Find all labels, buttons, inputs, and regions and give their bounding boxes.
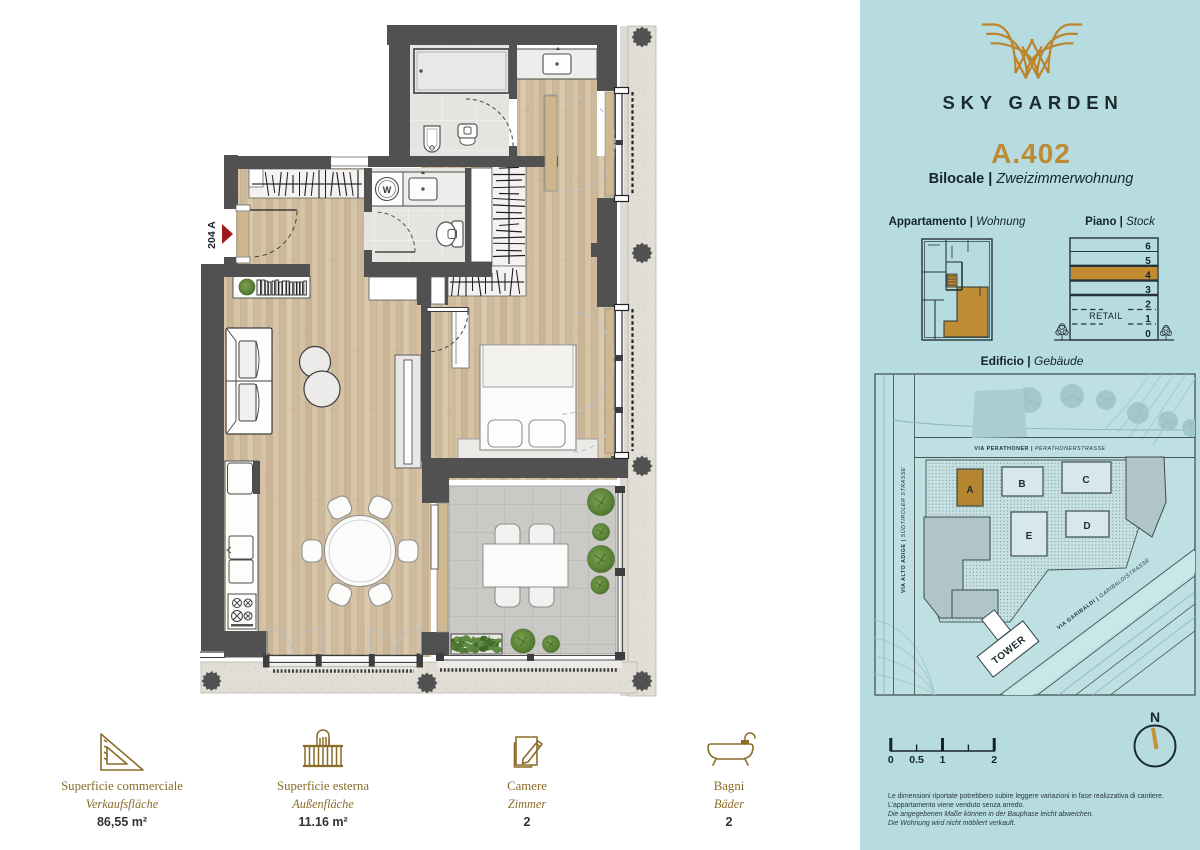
svg-text:Le dimensioni riportate potreb: Le dimensioni riportate potrebbero subir… bbox=[888, 793, 1164, 800]
svg-text:Edificio | Gebäude: Edificio | Gebäude bbox=[981, 354, 1084, 368]
svg-text:0: 0 bbox=[1145, 329, 1151, 340]
svg-text:Zimmer: Zimmer bbox=[508, 797, 546, 811]
svg-text:Bagni: Bagni bbox=[714, 779, 745, 793]
svg-text:Verkaufsfläche: Verkaufsfläche bbox=[86, 797, 159, 811]
svg-text:86,55 m²: 86,55 m² bbox=[97, 815, 147, 829]
svg-text:0: 0 bbox=[888, 754, 894, 766]
svg-text:A.402: A.402 bbox=[991, 138, 1071, 169]
svg-text:2: 2 bbox=[1145, 300, 1151, 311]
svg-text:2: 2 bbox=[524, 815, 531, 829]
svg-text:W: W bbox=[383, 185, 392, 195]
svg-text:0.5: 0.5 bbox=[909, 754, 924, 766]
svg-text:D: D bbox=[1083, 521, 1090, 532]
svg-text:2: 2 bbox=[991, 754, 997, 766]
svg-text:2: 2 bbox=[726, 815, 733, 829]
svg-text:VIA ALTO ADIGE | SÜDTIROLER ST: VIA ALTO ADIGE | SÜDTIROLER STRASSE bbox=[900, 467, 907, 593]
svg-text:1: 1 bbox=[1145, 314, 1151, 325]
svg-text:VIA PERATHONER | PERATHONERSTR: VIA PERATHONER | PERATHONERSTRASSE bbox=[974, 446, 1105, 452]
svg-text:RETAIL: RETAIL bbox=[1089, 311, 1123, 321]
svg-text:C: C bbox=[1082, 475, 1089, 486]
svg-text:Superficie esterna: Superficie esterna bbox=[277, 779, 369, 793]
svg-text:3: 3 bbox=[1145, 285, 1151, 296]
svg-text:Piano | Stock: Piano | Stock bbox=[1085, 216, 1156, 228]
svg-text:E: E bbox=[1026, 531, 1033, 542]
svg-text:204 A: 204 A bbox=[206, 221, 218, 249]
svg-text:6: 6 bbox=[1145, 242, 1151, 253]
svg-text:5: 5 bbox=[1145, 256, 1151, 267]
svg-text:Außenfläche: Außenfläche bbox=[291, 797, 354, 811]
svg-text:B: B bbox=[1018, 479, 1025, 490]
svg-text:Bilocale | Zweizimmerwohnung: Bilocale | Zweizimmerwohnung bbox=[929, 171, 1134, 187]
svg-text:SKY GARDEN: SKY GARDEN bbox=[942, 92, 1123, 113]
svg-text:Superficie commerciale: Superficie commerciale bbox=[61, 779, 183, 793]
svg-text:Appartamento | Wohnung: Appartamento | Wohnung bbox=[889, 216, 1026, 228]
svg-text:4: 4 bbox=[1145, 271, 1151, 282]
svg-text:11.16 m²: 11.16 m² bbox=[298, 815, 347, 829]
svg-text:N: N bbox=[1150, 709, 1160, 725]
svg-text:Die angegebenen Maße können in: Die angegebenen Maße können in der Bauph… bbox=[888, 811, 1093, 818]
svg-text:1: 1 bbox=[940, 754, 946, 766]
svg-text:A: A bbox=[966, 485, 973, 496]
svg-text:L’appartamento viene venduto s: L’appartamento viene venduto senza arred… bbox=[888, 802, 1024, 809]
svg-text:Die Wohnung wird nicht möblie: Die Wohnung wird nicht möbliert verkauft… bbox=[888, 820, 1016, 827]
svg-text:Camere: Camere bbox=[507, 779, 547, 793]
svg-text:Bäder: Bäder bbox=[714, 797, 744, 811]
